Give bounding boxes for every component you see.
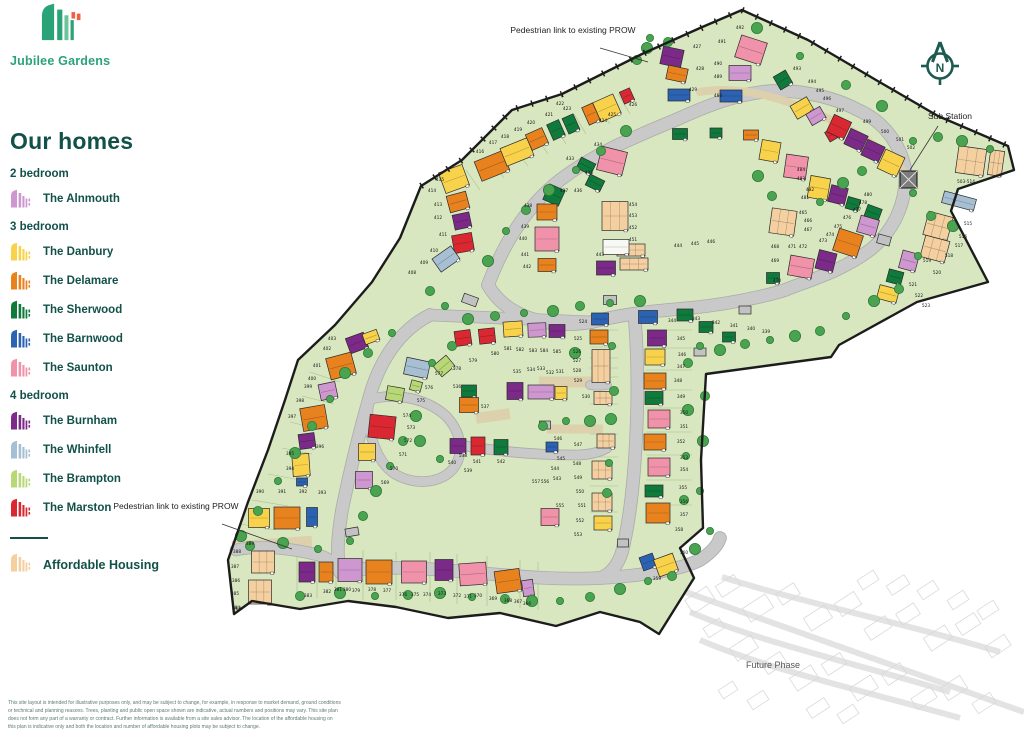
plot-number: 354: [680, 467, 688, 473]
tree-icon: [614, 583, 625, 594]
plot-number: 439: [521, 224, 529, 230]
plot-number: 499: [863, 119, 871, 125]
pedestrian-link-label-top: Pedestrian link to existing PROW: [498, 25, 648, 36]
plot-number: 356: [680, 499, 688, 505]
house-burnham: [507, 383, 523, 401]
plot-number: 366: [523, 601, 531, 607]
house-sherwood: [723, 332, 736, 343]
plot-number: 347: [677, 364, 685, 370]
house-burnham: [450, 439, 466, 455]
plot-number: 583: [529, 348, 537, 354]
plot-number: 373: [438, 591, 446, 597]
plot-number: 492: [736, 25, 744, 31]
plot-number: 396: [316, 444, 324, 450]
plot-number: 581: [504, 346, 512, 352]
house-affordable: [955, 146, 987, 178]
plot-number: 368: [504, 598, 512, 604]
house-alnmouth: [356, 472, 373, 490]
plot-number: 451: [629, 237, 637, 243]
plot-number: 383: [304, 593, 312, 599]
disclaimer-line: This site layout is intended for illustr…: [8, 699, 380, 707]
plot-number: 520: [933, 270, 941, 276]
plot-number: 482: [806, 187, 814, 193]
disclaimer-line: does not form any part of a warranty or …: [8, 715, 380, 723]
plot-number: 453: [629, 213, 637, 219]
house-danbury: [594, 516, 612, 531]
plot-number: 391: [278, 489, 286, 495]
plot-number: 340: [747, 326, 755, 332]
plot-number: 549: [574, 475, 582, 481]
plot-number: 532: [546, 370, 554, 376]
house-barnwood: [297, 478, 308, 487]
tree-icon: [796, 52, 803, 59]
plot-number: 382: [323, 589, 331, 595]
tree-icon: [842, 312, 849, 319]
plot-number: 412: [434, 215, 442, 221]
tree-icon: [766, 336, 773, 343]
house-danbury: [645, 349, 665, 366]
tree-icon: [584, 415, 595, 426]
house-sherwood: [462, 385, 477, 398]
tree-icon: [388, 329, 395, 336]
house-marston: [478, 328, 496, 346]
plot-number: 585: [553, 349, 561, 355]
home-type-icon: [10, 498, 32, 517]
plot-number: 371: [464, 594, 472, 600]
plot-number: 477: [853, 207, 861, 213]
plot-number: 352: [677, 439, 685, 445]
plot-number: 411: [439, 232, 447, 238]
tree-icon: [441, 302, 448, 309]
plot-number: 395: [286, 451, 294, 457]
plot-number: 527: [573, 358, 581, 364]
tree-icon: [556, 597, 563, 604]
home-type-icon: [10, 411, 32, 430]
plot-number: 525: [574, 336, 582, 342]
legend-group-label: 4 bedroom: [10, 390, 245, 402]
plot-number: 372: [453, 593, 461, 599]
legend-item-label: The Delamare: [43, 275, 118, 287]
pedestrian-link-label-left: Pedestrian link to existing PROW: [100, 501, 252, 512]
plot-number: 539: [464, 468, 472, 474]
tree-icon: [502, 227, 509, 234]
plot-number: 534: [527, 367, 535, 373]
plot-number: 569: [381, 480, 389, 486]
legend-item-danbury: The Danbury: [10, 242, 245, 261]
tree-icon: [696, 342, 703, 349]
home-type-icon: [10, 553, 32, 572]
plot-number: 490: [714, 61, 722, 67]
legend-group-label: 2 bedroom: [10, 168, 245, 180]
home-type-icon: [10, 440, 32, 459]
plot-number: 491: [718, 39, 726, 45]
house-delamare: [319, 562, 333, 583]
plot-number: 375: [411, 592, 419, 598]
plot-number: 398: [296, 398, 304, 404]
plot-number: 445: [691, 241, 699, 247]
tree-icon: [462, 313, 473, 324]
house-saunton: [648, 410, 670, 429]
plot-number: 379: [352, 588, 360, 594]
future-phase-label: Future Phase: [728, 660, 818, 671]
house-affordable: [252, 551, 275, 574]
house-delamare: [538, 259, 556, 273]
tree-icon: [606, 299, 613, 306]
house-saunton: [402, 561, 427, 584]
house-sherwood: [699, 322, 713, 334]
plot-number: 551: [578, 503, 586, 509]
plot-number: 350: [680, 410, 688, 416]
plot-number: 427: [693, 44, 701, 50]
plot-number: 544: [551, 466, 559, 472]
house-delamare: [494, 568, 522, 595]
legend-item-delamare: The Delamare: [10, 271, 245, 290]
house-delamare: [537, 204, 557, 221]
home-type-icon: [10, 242, 32, 261]
plot-number: 478: [859, 200, 867, 206]
plot-number: 389: [246, 541, 254, 547]
house-barnwood: [639, 311, 658, 325]
plot-number: 346: [678, 352, 686, 358]
plot-number: 424: [599, 118, 607, 124]
plot-number: 468: [771, 244, 779, 250]
house-white: [603, 240, 629, 256]
tree-icon: [609, 386, 618, 395]
tree-icon: [876, 100, 887, 111]
legend-item-label: The Saunton: [43, 362, 113, 374]
house-alnmouth: [528, 323, 547, 339]
plot-number: 426: [629, 102, 637, 108]
north-compass-icon: N: [914, 36, 966, 99]
plot-number: 476: [843, 215, 851, 221]
affordable-housing-home-icon: [10, 553, 32, 577]
tree-icon: [425, 286, 434, 295]
plot-number: 410: [430, 248, 438, 254]
plot-number: 533: [537, 366, 545, 372]
house-affordable: [594, 392, 612, 406]
legend-item-whinfell: The Whinfell: [10, 440, 245, 459]
plot-number: 376: [399, 592, 407, 598]
plot-number: 573: [407, 425, 415, 431]
house-marston: [471, 437, 485, 456]
plot-number: 370: [474, 593, 482, 599]
plot-number: 524: [579, 319, 587, 325]
plot-number: 377: [383, 588, 391, 594]
plot-number: 355: [679, 485, 687, 491]
plot-number: 415: [436, 177, 444, 183]
tree-icon: [751, 22, 762, 33]
plot-number: 578: [453, 366, 461, 372]
plot-number: 474: [826, 232, 834, 238]
house-affordable: [620, 258, 648, 271]
plot-number: 400: [308, 376, 316, 382]
plot-number: 536: [453, 384, 461, 390]
tree-icon: [689, 543, 700, 554]
tree-icon: [482, 255, 493, 266]
disclaimer-text: This site layout is intended for illustr…: [8, 699, 380, 731]
disclaimer-line: or technical and planning reasons. Trees…: [8, 707, 380, 715]
plot-number: 542: [497, 459, 505, 465]
house-alnmouth: [729, 66, 751, 82]
house-danbury: [503, 321, 523, 339]
plot-number: 571: [399, 452, 407, 458]
tree-icon: [602, 488, 611, 497]
plot-number: 493: [793, 66, 801, 72]
plot-number: 522: [915, 293, 923, 299]
plot-number: 357: [680, 512, 688, 518]
plot-number: 341: [730, 323, 738, 329]
plot-number: 420: [527, 120, 535, 126]
house-burnham: [452, 212, 472, 232]
tree-icon: [447, 341, 456, 350]
tree-icon: [605, 413, 616, 424]
plot-number: 436: [574, 188, 582, 194]
plot-number: 428: [696, 66, 704, 72]
plot-number: 452: [629, 225, 637, 231]
tree-icon: [956, 135, 967, 146]
house-delamare: [366, 560, 392, 585]
plot-number: 344: [668, 318, 676, 324]
plot-number: 466: [804, 218, 812, 224]
plot-number: 579: [469, 358, 477, 364]
house-affordable: [769, 208, 797, 238]
tree-icon: [326, 395, 333, 402]
tree-icon: [414, 435, 425, 446]
tree-icon: [358, 511, 367, 520]
legend-item-saunton: The Saunton: [10, 358, 245, 377]
house-delamare: [274, 507, 300, 530]
plot-number: 353: [680, 455, 688, 461]
plot-number: 480: [864, 192, 872, 198]
plot-number: 517: [955, 243, 963, 249]
plot-number: 343: [692, 316, 700, 322]
plot-number: 421: [545, 112, 553, 118]
plot-number: 557: [532, 479, 540, 485]
plot-number: 553: [574, 532, 582, 538]
plot-number: 378: [368, 587, 376, 593]
tree-icon: [572, 166, 579, 173]
plot-number: 369: [489, 596, 497, 602]
homes-legend: Our homes 2 bedroom The Alnmouth3 bedroo…: [10, 128, 245, 584]
tree-icon: [490, 311, 499, 320]
tree-icon: [868, 295, 879, 306]
plot-number: 454: [629, 202, 637, 208]
plot-number: 339: [762, 329, 770, 335]
plot-number: 556: [541, 479, 549, 485]
garage: [618, 539, 629, 547]
plot-number: 409: [420, 260, 428, 266]
house-marston: [368, 414, 396, 441]
future-phase-linework: [680, 570, 1024, 724]
legend-group-label: 3 bedroom: [10, 221, 245, 233]
plot-number: 518: [945, 253, 953, 259]
tree-icon: [926, 211, 935, 220]
tree-icon: [894, 284, 903, 293]
plot-number: 441: [521, 252, 529, 258]
tree-icon: [608, 342, 615, 349]
house-delamare: [590, 330, 608, 345]
plot-number: 576: [425, 385, 433, 391]
home-type-icon: [10, 358, 32, 377]
house-sherwood: [673, 129, 688, 141]
plot-number: 467: [804, 227, 812, 233]
plot-number: 442: [523, 264, 531, 270]
plot-number: 348: [674, 378, 682, 384]
plot-number: 423: [563, 106, 571, 112]
home-type-icon: [10, 329, 32, 348]
plot-number: 546: [554, 436, 562, 442]
legend-item-label: Affordable Housing: [43, 558, 159, 572]
plot-number: 472: [799, 244, 807, 250]
plot-number: 397: [288, 414, 296, 420]
plot-number: 349: [677, 394, 685, 400]
plot-number: 552: [576, 518, 584, 524]
plot-number: 535: [513, 369, 521, 375]
plot-number: 381: [334, 587, 342, 593]
house-sherwood: [645, 392, 663, 406]
tree-icon: [740, 339, 749, 348]
house-burnham: [597, 261, 616, 276]
plot-number: 417: [489, 140, 497, 146]
plot-number: 538: [459, 453, 467, 459]
house-saunton: [648, 458, 670, 477]
house-delamare: [646, 503, 670, 524]
tree-icon: [706, 527, 713, 534]
plot-number: 541: [473, 459, 481, 465]
house-delamare: [744, 130, 759, 141]
plot-number: 443: [596, 252, 604, 258]
tree-icon: [752, 170, 763, 181]
plot-number: 434: [594, 142, 602, 148]
plot-number: 440: [519, 236, 527, 242]
house-sherwood: [677, 309, 693, 322]
tree-icon: [909, 137, 916, 144]
plot-number: 526: [573, 349, 581, 355]
house-barnwood: [592, 313, 609, 326]
plot-number: 419: [514, 127, 522, 133]
tree-icon: [274, 477, 281, 484]
plot-number: 502: [907, 145, 915, 151]
legend-divider: [10, 537, 48, 539]
house-affordable: [597, 434, 615, 449]
tree-icon: [575, 301, 584, 310]
plot-number: 528: [573, 368, 581, 374]
plot-number: 402: [323, 346, 331, 352]
plot-number: 529: [574, 378, 582, 384]
plot-number: 540: [448, 460, 456, 466]
tree-icon: [520, 309, 527, 316]
tree-icon: [307, 421, 316, 430]
plot-number: 408: [408, 270, 416, 276]
plot-number: 367: [514, 599, 522, 605]
plot-number: 494: [808, 79, 816, 85]
tree-icon: [410, 410, 421, 421]
tree-icon: [346, 537, 353, 544]
tree-icon: [547, 305, 558, 316]
house-delamare: [460, 398, 479, 414]
plot-number: 469: [771, 258, 779, 264]
tree-icon: [543, 184, 554, 195]
tree-icon: [428, 359, 435, 366]
tree-icon: [644, 577, 651, 584]
plot-number: 531: [556, 369, 564, 375]
house-delamare: [644, 434, 666, 451]
tree-icon: [605, 459, 612, 466]
jubilee-gardens-logo-icon: [40, 2, 82, 47]
plot-number: 414: [428, 188, 436, 194]
tree-icon: [909, 189, 916, 196]
plot-number: 444: [674, 243, 682, 249]
legend-item-barnwood: The Barnwood: [10, 329, 245, 348]
legend-item-label: The Danbury: [43, 246, 113, 258]
legend-item-label: The Barnwood: [43, 333, 123, 345]
legend-item-label: The Brampton: [43, 473, 121, 485]
plot-number: 545: [557, 456, 565, 462]
garage: [739, 306, 751, 314]
legend-item-alnmouth: The Alnmouth: [10, 189, 245, 208]
tree-icon: [841, 80, 850, 89]
plot-number: 351: [680, 424, 688, 430]
brand-name: Jubilee Gardens: [10, 54, 110, 68]
tree-icon: [767, 191, 776, 200]
tree-icon: [370, 485, 381, 496]
plot-number: 575: [417, 398, 425, 404]
plot-number: 380: [343, 587, 351, 593]
house-saunton: [541, 509, 559, 527]
plot-number: 497: [836, 108, 844, 114]
tree-icon: [933, 132, 942, 141]
tree-icon: [634, 295, 645, 306]
plot-number: 548: [573, 461, 581, 467]
legend-item-sherwood: The Sherwood: [10, 300, 245, 319]
plot-number: 359: [653, 576, 661, 582]
plot-number: 574: [403, 413, 411, 419]
house-burnham: [299, 562, 315, 583]
legend-title: Our homes: [10, 128, 245, 155]
tree-icon: [363, 348, 372, 357]
plot-number: 484: [797, 167, 805, 173]
plot-number: 577: [435, 371, 443, 377]
tree-icon: [562, 417, 569, 424]
plot-number: 500: [881, 129, 889, 135]
house-burnham: [549, 325, 565, 339]
plot-number: 429: [689, 87, 697, 93]
plot-number: 582: [516, 347, 524, 353]
tree-icon: [986, 145, 993, 152]
house-sherwood: [494, 440, 508, 456]
plot-number: 572: [404, 438, 412, 444]
plot-number: 471: [788, 244, 796, 250]
house-affordable: [592, 350, 610, 384]
house-danbury: [359, 444, 376, 462]
plot-number: 470: [773, 278, 781, 284]
house-sherwood: [645, 485, 663, 498]
plot-number: 584: [540, 348, 548, 354]
plot-number: 399: [304, 384, 312, 390]
plot-number: 488: [714, 93, 722, 99]
plot-number: 435: [585, 170, 593, 176]
plot-number: 483: [797, 176, 805, 182]
compass-n-letter: N: [936, 61, 945, 75]
plot-number: 392: [299, 489, 307, 495]
plot-number: 547: [574, 442, 582, 448]
legend-item-burnham: The Burnham: [10, 411, 245, 430]
tree-icon: [815, 326, 824, 335]
plot-number: 543: [553, 476, 561, 482]
plot-number: 475: [834, 224, 842, 230]
plot-number: 519: [923, 258, 931, 264]
tree-icon: [339, 367, 350, 378]
